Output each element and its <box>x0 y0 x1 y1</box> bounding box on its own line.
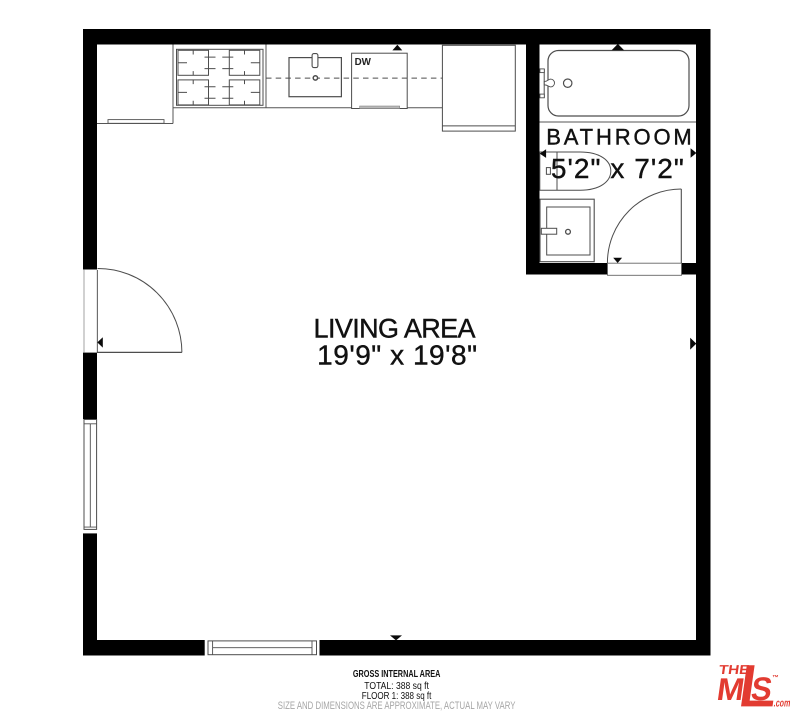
svg-text:.com: .com <box>773 698 791 710</box>
svg-text:19'9" x 19'8": 19'9" x 19'8" <box>317 340 477 371</box>
svg-text:™: ™ <box>771 675 778 682</box>
svg-text:DW: DW <box>355 57 372 68</box>
svg-text:5'2" x 7'2": 5'2" x 7'2" <box>551 153 684 184</box>
svg-text:GROSS INTERNAL AREA: GROSS INTERNAL AREA <box>353 669 441 680</box>
svg-text:BATHROOM: BATHROOM <box>546 125 692 150</box>
svg-text:SIZE AND DIMENSIONS ARE APPROX: SIZE AND DIMENSIONS ARE APPROXIMATE, ACT… <box>278 700 516 712</box>
